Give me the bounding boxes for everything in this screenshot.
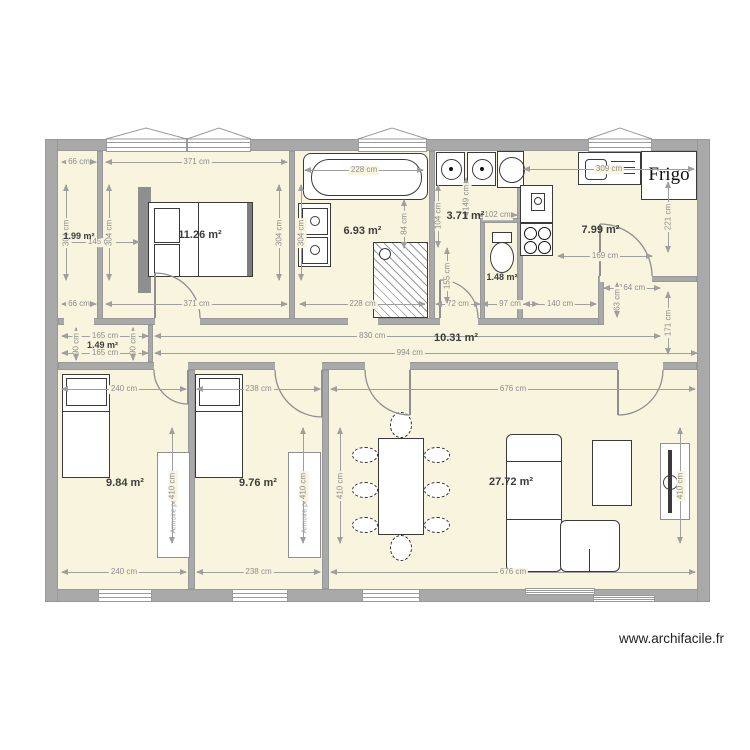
drainer-line xyxy=(611,173,635,174)
bathtub-basin xyxy=(311,159,422,196)
pillow xyxy=(154,244,180,277)
washer-dot xyxy=(449,167,453,171)
chair xyxy=(424,517,450,533)
window-bedroom-2 xyxy=(187,138,251,152)
chair xyxy=(424,482,450,498)
chair xyxy=(352,482,378,498)
room-label-entry: 1.49 m² xyxy=(80,340,125,350)
sheet-line xyxy=(196,411,242,412)
door-gap-corridor xyxy=(440,318,478,325)
wardrobe-label: Armoire penderie xyxy=(302,463,309,551)
room-label-bedroom3: 9.76 m² xyxy=(228,477,288,489)
door-gap-bedroom2 xyxy=(154,362,188,370)
room-label-living: 27.72 m² xyxy=(478,476,544,488)
fridge: Frigo xyxy=(641,151,697,200)
room-label-closet: 1.99 m² xyxy=(58,231,100,241)
sink-basin xyxy=(302,237,328,264)
window-bathroom xyxy=(358,138,427,152)
chair xyxy=(424,447,450,463)
room-label-wc: 1.48 m² xyxy=(482,272,522,282)
archifacile-credit: www.archifacile.fr xyxy=(619,631,724,646)
room-label-laundry: 3.71 m² xyxy=(438,210,493,222)
sink-drain xyxy=(310,245,320,255)
sofa-section-horizontal xyxy=(560,520,620,572)
wall-hallway-top xyxy=(58,318,604,325)
sofa-seam xyxy=(507,519,561,520)
sofa-seam xyxy=(589,549,590,571)
bathtub xyxy=(303,153,428,200)
outer-wall-left xyxy=(45,139,58,602)
drainer-line xyxy=(611,167,635,168)
dining-table xyxy=(378,438,424,535)
chair xyxy=(352,447,378,463)
window-bedroom3 xyxy=(232,589,288,602)
window-bedroom2 xyxy=(98,589,152,602)
room-label-kitchen: 7.99 m² xyxy=(568,224,633,236)
window-bedroom-1 xyxy=(106,138,187,152)
door-gap-kitchen xyxy=(600,276,652,282)
burner xyxy=(524,227,537,240)
room-label-bathroom: 6.93 m² xyxy=(325,225,400,237)
tv-unit xyxy=(660,443,690,520)
chair xyxy=(390,412,412,438)
window-living xyxy=(362,589,420,602)
wardrobe: Armoire penderie xyxy=(157,452,190,558)
faucet-dot xyxy=(534,197,542,205)
drainer-line xyxy=(611,161,635,162)
counter-basin xyxy=(585,159,607,180)
pillow xyxy=(199,378,240,406)
wall-bathroom-laundry xyxy=(429,151,435,325)
chair xyxy=(352,517,378,533)
tv-stand xyxy=(663,475,678,490)
single-bed xyxy=(62,374,110,478)
burner xyxy=(524,241,537,254)
burner xyxy=(538,227,551,240)
room-label-bedroom: 11.26 m² xyxy=(160,229,240,241)
wall-bedroom3-living xyxy=(322,370,329,589)
sink-drain xyxy=(310,216,320,226)
sliding-door-panel-1 xyxy=(525,588,595,595)
sofa-seam xyxy=(507,461,561,462)
stove xyxy=(520,223,553,256)
door-gap-bedroom3 xyxy=(275,362,322,370)
burner xyxy=(538,241,551,254)
dryer-drum xyxy=(499,157,525,183)
pillow xyxy=(66,378,107,406)
washing-machine xyxy=(436,152,465,186)
wall-kitchen-step xyxy=(598,276,604,325)
sofa-section-vertical xyxy=(506,434,562,572)
wardrobe-label: Armoire penderie xyxy=(171,463,178,551)
washer-dot xyxy=(480,167,484,171)
counter-sink xyxy=(578,152,641,185)
bed-footboard xyxy=(247,203,252,276)
sheet-line xyxy=(63,411,109,412)
chair xyxy=(390,535,412,561)
coffee-table xyxy=(592,440,632,506)
room-label-hallway: 10.31 m² xyxy=(425,332,487,344)
window-kitchen xyxy=(588,138,652,152)
shower-drain xyxy=(379,248,391,260)
toilet-bowl xyxy=(490,242,514,273)
room-label-bedroom2: 9.84 m² xyxy=(95,477,155,489)
wardrobe: Armoire penderie xyxy=(288,452,321,558)
sliding-door-panel-2 xyxy=(593,595,655,602)
dryer xyxy=(497,151,524,188)
washing-machine xyxy=(467,152,496,186)
wall-bedroom-bathroom xyxy=(289,151,295,325)
fridge-label: Frigo xyxy=(648,164,689,185)
door-gap-bathroom xyxy=(348,318,378,325)
outer-wall-right xyxy=(697,139,710,602)
door-gap-living-1 xyxy=(365,362,410,370)
door-gap-living-2 xyxy=(618,362,663,370)
door-gap-closet xyxy=(64,318,94,325)
shower xyxy=(373,242,428,318)
single-bed xyxy=(195,374,243,478)
wall-entry-separator xyxy=(148,325,153,362)
door-gap-bedroom xyxy=(155,318,200,325)
kitchen-sink-unit xyxy=(520,185,553,223)
floor-plan-page: { "credit": "www.archifacile.fr", "palet… xyxy=(0,0,750,750)
